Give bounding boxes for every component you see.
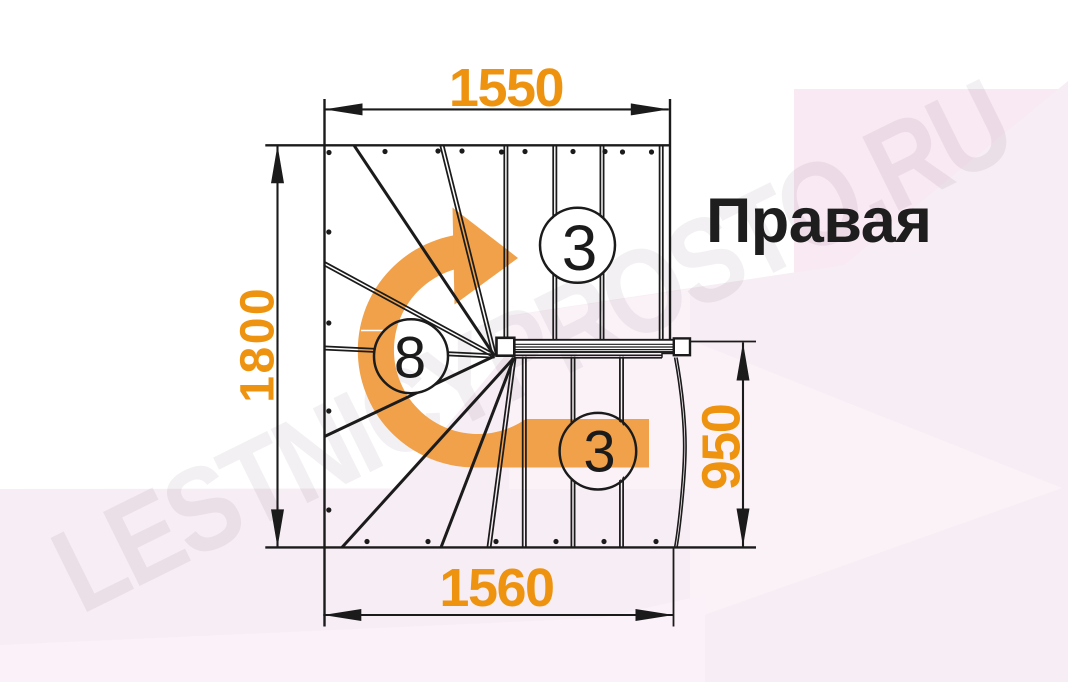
svg-text:1560: 1560 [439, 558, 553, 618]
svg-text:3: 3 [583, 420, 615, 485]
svg-text:1800: 1800 [232, 286, 285, 403]
svg-text:950: 950 [692, 405, 752, 491]
svg-text:3: 3 [562, 212, 598, 284]
svg-text:8: 8 [394, 326, 426, 391]
svg-text:1550: 1550 [449, 58, 563, 118]
svg-text:Правая: Правая [706, 186, 932, 256]
